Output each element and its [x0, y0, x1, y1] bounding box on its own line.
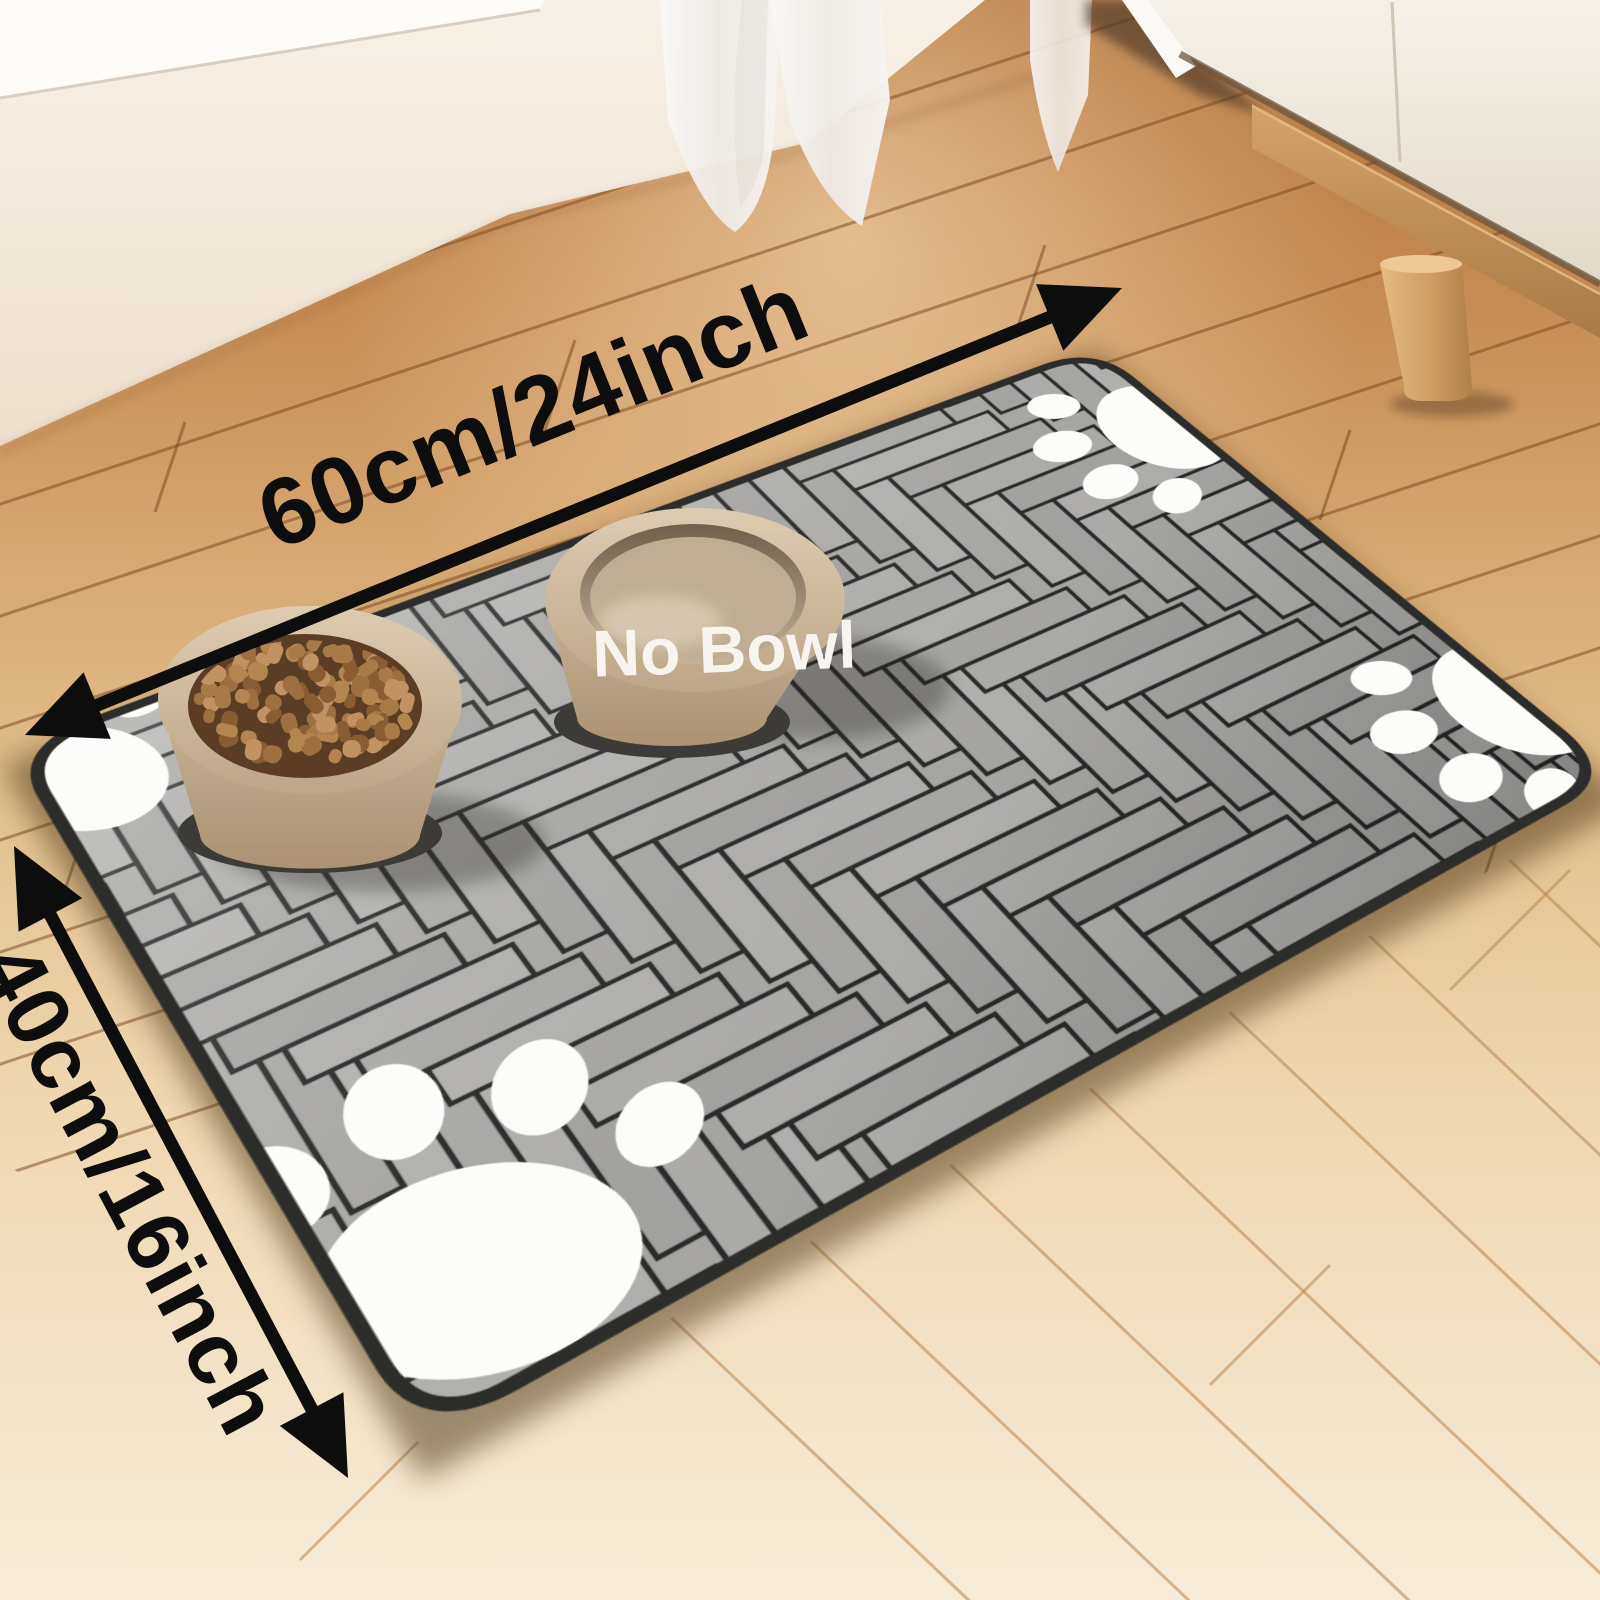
- product-photo: 60cm/24inch 40cm/16inch No Bowl: [0, 0, 1600, 1600]
- cabinet-leg-top: [1380, 255, 1462, 273]
